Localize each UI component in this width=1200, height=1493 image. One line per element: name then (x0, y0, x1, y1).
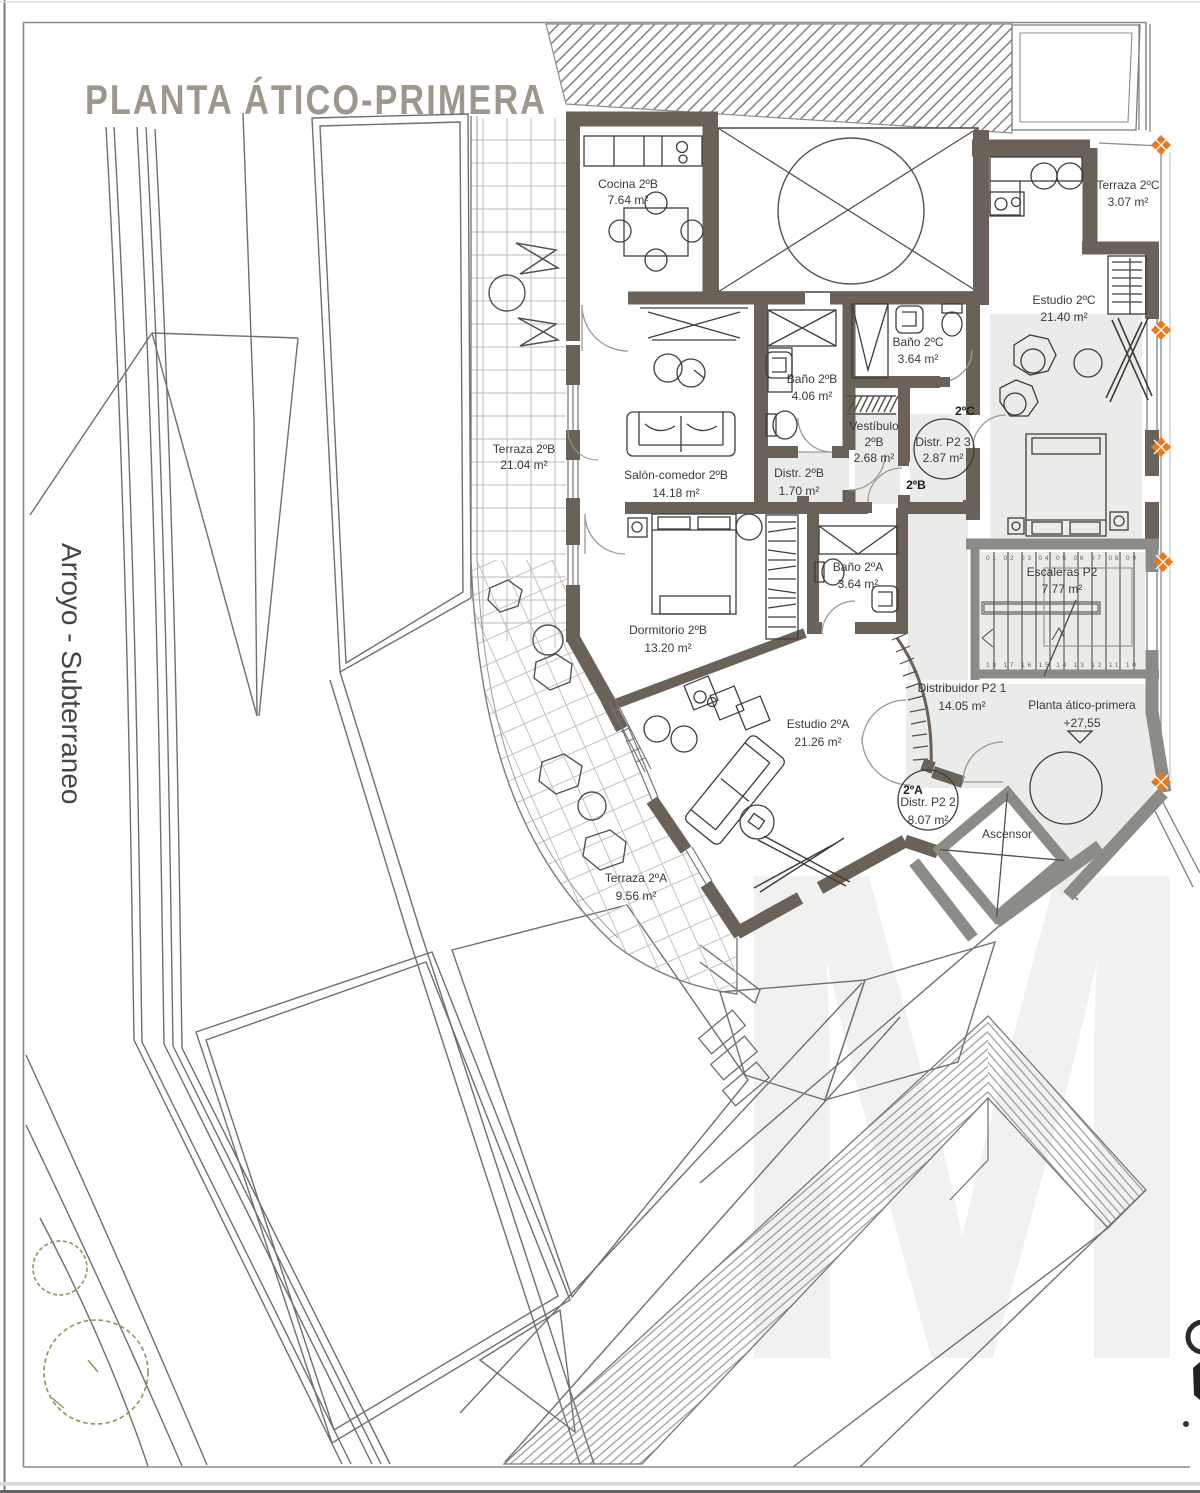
svg-text:Vestíbulo: Vestíbulo (849, 419, 899, 433)
svg-text:Distr. P2 3: Distr. P2 3 (915, 435, 971, 449)
svg-text:+27,55: +27,55 (1063, 716, 1100, 730)
svg-text:Baño 2ºB: Baño 2ºB (787, 372, 837, 386)
svg-text:2.68 m²: 2.68 m² (854, 451, 895, 465)
svg-text:Arroyo - Subterraneo: Arroyo - Subterraneo (56, 543, 87, 804)
svg-text:Distr. 2ºB: Distr. 2ºB (774, 466, 824, 480)
svg-text:3.64 m²: 3.64 m² (838, 577, 879, 591)
svg-text:3.07 m²: 3.07 m² (1108, 195, 1149, 209)
svg-text:Salón-comedor 2ºB: Salón-comedor 2ºB (624, 468, 728, 482)
svg-text:13.20 m²: 13.20 m² (644, 641, 691, 655)
svg-text:21.04 m²: 21.04 m² (500, 458, 547, 472)
svg-text:14.05 m²: 14.05 m² (938, 699, 985, 713)
svg-text:Planta ático-primera: Planta ático-primera (1028, 698, 1136, 712)
svg-text:21.26 m²: 21.26 m² (794, 735, 841, 749)
svg-text:3.64 m²: 3.64 m² (898, 352, 939, 366)
svg-text:9.56 m²: 9.56 m² (616, 889, 657, 903)
svg-text:Estudio 2ºC: Estudio 2ºC (1032, 293, 1095, 307)
svg-text:Estudio 2ºA: Estudio 2ºA (787, 717, 849, 731)
svg-text:Cocina 2ºB: Cocina 2ºB (598, 177, 658, 191)
svg-text:2ºC: 2ºC (955, 404, 975, 418)
svg-text:2ºB: 2ºB (906, 478, 926, 492)
svg-text:2ºB: 2ºB (864, 435, 883, 449)
svg-text:Distribuidor P2 1: Distribuidor P2 1 (918, 681, 1007, 695)
svg-text:Ascensor: Ascensor (982, 827, 1032, 841)
svg-text:8.07 m²: 8.07 m² (908, 813, 949, 827)
svg-text:21.40 m²: 21.40 m² (1040, 310, 1087, 324)
svg-text:7.77 m²: 7.77 m² (1042, 582, 1083, 596)
svg-text:Terraza 2ºA: Terraza 2ºA (605, 871, 667, 885)
svg-text:4.06 m²: 4.06 m² (792, 389, 833, 403)
svg-text:2ºA: 2ºA (903, 783, 923, 797)
svg-text:Distr. P2 2: Distr. P2 2 (900, 795, 956, 809)
svg-text:2.87 m²: 2.87 m² (923, 451, 964, 465)
svg-text:Terraza 2ºC: Terraza 2ºC (1096, 178, 1159, 192)
svg-text:7.64 m²: 7.64 m² (608, 193, 649, 207)
svg-text:Baño 2ºA: Baño 2ºA (833, 560, 883, 574)
svg-text:Terraza 2ºB: Terraza 2ºB (493, 442, 555, 456)
svg-text:Baño 2ºC: Baño 2ºC (892, 335, 943, 349)
svg-text:1.70 m²: 1.70 m² (779, 484, 820, 498)
svg-text:Escaleras P2: Escaleras P2 (1027, 565, 1098, 579)
svg-text:14.18 m²: 14.18 m² (652, 486, 699, 500)
svg-text:Dormitorio 2ºB: Dormitorio 2ºB (629, 623, 707, 637)
svg-text:PLANTA ÁTICO-PRIMERA: PLANTA ÁTICO-PRIMERA (85, 76, 547, 123)
